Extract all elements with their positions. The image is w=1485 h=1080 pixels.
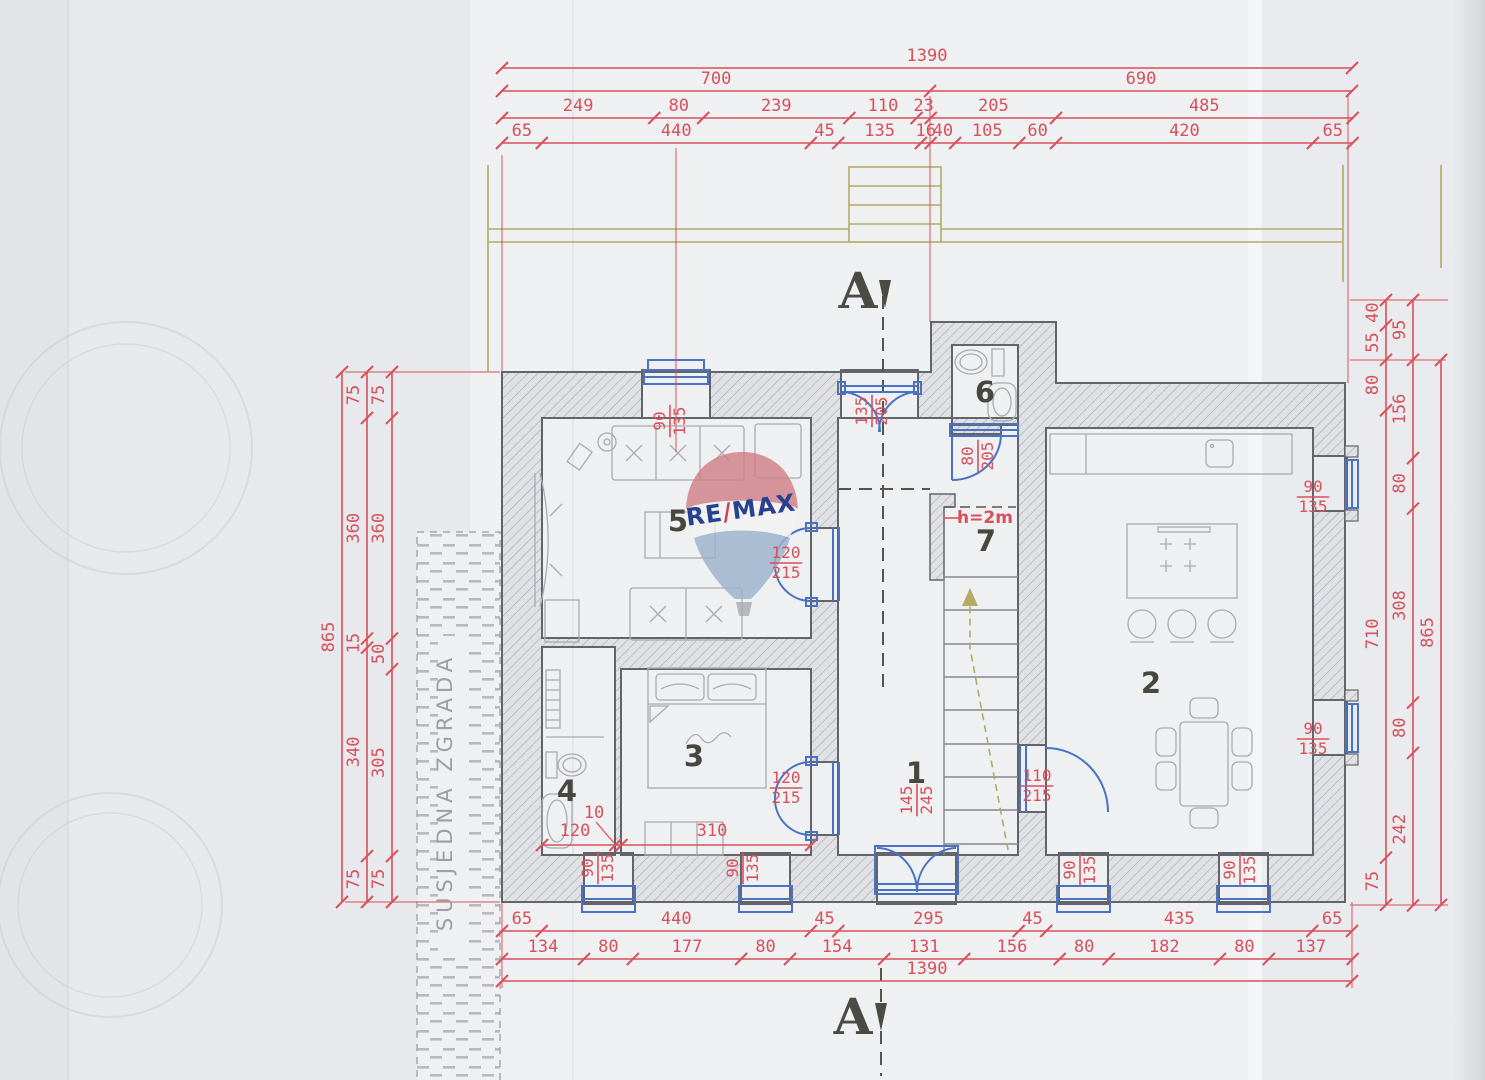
- room-label-3: 3: [684, 739, 704, 773]
- neighbor-building-area: [417, 532, 500, 1080]
- dim-text: 75: [1363, 871, 1383, 891]
- dim-text: 700: [701, 69, 732, 89]
- window-reveal: [1345, 754, 1358, 765]
- dim-text: 137: [1295, 937, 1326, 957]
- room-label-2: 2: [1141, 666, 1161, 700]
- section-marker-bottom: A: [833, 987, 874, 1046]
- dim-text: 75: [369, 385, 389, 405]
- svg-text:135: 135: [1299, 739, 1328, 758]
- dim-text: 80: [1363, 375, 1383, 395]
- dim-text: 131: [909, 937, 940, 957]
- svg-text:90: 90: [1220, 860, 1239, 879]
- dim-text: 440: [661, 121, 692, 141]
- dim-text: 45: [814, 909, 834, 929]
- window-reveal: [1345, 446, 1358, 457]
- svg-text:205: 205: [978, 442, 997, 471]
- dim-text: 154: [822, 937, 853, 957]
- svg-text:120: 120: [772, 768, 801, 787]
- dim-text: 865: [319, 622, 339, 653]
- dim-text: 60: [1027, 121, 1047, 141]
- opening-size-label: 120215: [770, 543, 803, 582]
- dim-text: 80: [668, 96, 688, 116]
- dim-text: 80: [598, 937, 618, 957]
- interior-dim-120: 120: [560, 821, 591, 841]
- opening-size-label: 135205: [852, 395, 891, 428]
- room-label-7: 7: [976, 524, 996, 558]
- dim-text: 65: [512, 909, 532, 929]
- room-label-4: 4: [557, 774, 577, 808]
- dim-text: 23: [913, 96, 933, 116]
- svg-text:215: 215: [772, 563, 801, 582]
- dim-text: 1390: [907, 46, 948, 66]
- dim-text: 45: [1022, 909, 1042, 929]
- dim-text: 865: [1418, 617, 1438, 648]
- dim-text: 65: [512, 121, 532, 141]
- height-note: h=2m: [957, 508, 1013, 528]
- svg-text:135: 135: [1080, 856, 1099, 885]
- dim-text: 420: [1169, 121, 1200, 141]
- opening-size-label: 120215: [770, 768, 803, 807]
- dim-text: 75: [344, 869, 364, 889]
- room-label-1: 1: [906, 756, 926, 790]
- svg-text:90: 90: [578, 858, 597, 877]
- dim-text: 80: [1074, 937, 1094, 957]
- dim-text: 15: [344, 633, 364, 653]
- dim-text: 435: [1164, 909, 1195, 929]
- dim-text: 80: [1390, 473, 1410, 493]
- dim-text: 690: [1126, 69, 1157, 89]
- dim-text: 40: [1363, 302, 1383, 322]
- dim-text: 182: [1149, 937, 1180, 957]
- dim-text: 295: [913, 909, 944, 929]
- dim-text: 249: [563, 96, 594, 116]
- floor-plan-scan: 1390700690249802391102320548565440451351…: [0, 0, 1485, 1080]
- svg-text:135: 135: [598, 854, 617, 883]
- dim-text: 134: [528, 937, 559, 957]
- svg-text:80: 80: [958, 446, 977, 465]
- dim-text: 205: [978, 96, 1009, 116]
- dim-text: 65: [1322, 121, 1342, 141]
- svg-text:90: 90: [1303, 477, 1322, 496]
- dim-text: 360: [369, 513, 389, 544]
- svg-text:215: 215: [772, 788, 801, 807]
- room-label-6: 6: [975, 375, 995, 409]
- dim-text: 305: [369, 747, 389, 778]
- dim-text: 55: [1363, 332, 1383, 352]
- svg-text:135: 135: [743, 854, 762, 883]
- dim-text: 75: [369, 869, 389, 889]
- window-reveal: [1345, 510, 1358, 521]
- svg-text:90: 90: [1060, 860, 1079, 879]
- neighbor-building-label: SUSJEDNA ZGRADA: [433, 653, 457, 931]
- svg-text:90: 90: [723, 858, 742, 877]
- dim-text: 440: [661, 909, 692, 929]
- dim-text: 65: [1322, 909, 1342, 929]
- dim-text: 340: [344, 737, 364, 768]
- section-marker-top: A: [838, 261, 879, 320]
- dim-text: 80: [1390, 718, 1410, 738]
- interior-dim-310: 310: [697, 821, 728, 841]
- window-reveal: [1345, 690, 1358, 701]
- svg-text:215: 215: [1023, 786, 1052, 805]
- dim-text: 485: [1189, 96, 1220, 116]
- dim-text: 80: [1234, 937, 1254, 957]
- svg-text:205: 205: [872, 397, 891, 426]
- dim-text: 308: [1390, 590, 1410, 621]
- svg-text:90: 90: [650, 411, 669, 430]
- svg-text:135: 135: [1299, 497, 1328, 516]
- svg-text:90: 90: [1303, 719, 1322, 738]
- dim-text: 360: [344, 513, 364, 544]
- dim-text: 50: [369, 644, 389, 664]
- svg-text:110: 110: [1023, 766, 1052, 785]
- dim-text: 1390: [907, 959, 948, 979]
- dim-text: 95: [1390, 320, 1410, 340]
- svg-text:120: 120: [772, 543, 801, 562]
- dim-text: 110: [868, 96, 899, 116]
- dim-text: 40: [933, 121, 953, 141]
- opening-size-label: 110215: [1021, 766, 1054, 805]
- dim-text: 45: [814, 121, 834, 141]
- dim-text: 239: [761, 96, 792, 116]
- svg-text:135: 135: [670, 407, 689, 436]
- interior-dim-10: 10: [584, 803, 604, 823]
- svg-text:135: 135: [852, 397, 871, 426]
- dim-text: 156: [997, 937, 1028, 957]
- dim-text: 80: [755, 937, 775, 957]
- dim-text: 242: [1390, 814, 1410, 845]
- dim-text: 75: [344, 385, 364, 405]
- dim-text: 135: [864, 121, 895, 141]
- svg-text:135: 135: [1240, 856, 1259, 885]
- dim-text: 156: [1390, 394, 1410, 425]
- dim-text: 710: [1363, 619, 1383, 650]
- dim-text: 177: [672, 937, 703, 957]
- dim-text: 105: [972, 121, 1003, 141]
